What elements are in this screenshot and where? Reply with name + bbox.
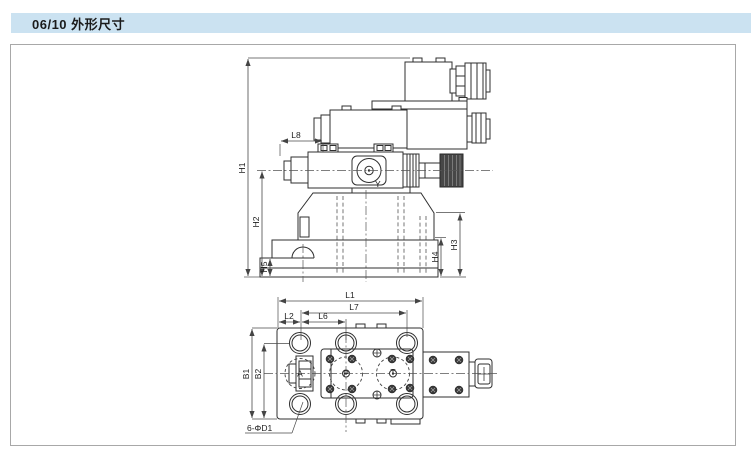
dim-label-h3: H3 xyxy=(449,239,459,250)
dim-label-b1: B1 xyxy=(241,369,251,380)
port-label-t: T xyxy=(390,367,395,377)
dim-label-h2: H2 xyxy=(251,216,261,227)
dim-label-h5: H5 xyxy=(259,261,269,272)
port-label-y: Y xyxy=(375,179,381,189)
port-label-a: A xyxy=(297,369,303,379)
dim-label-b2: B2 xyxy=(253,369,263,380)
dim-label-l6: L6 xyxy=(318,311,328,321)
dim-label-l7: L7 xyxy=(349,302,359,312)
dim-label-h1: H1 xyxy=(237,162,247,173)
top-view: L1 L7 L2 L6 B1 B2 A P T 6-ΦD1 xyxy=(241,290,497,433)
dim-label-l2: L2 xyxy=(284,311,294,321)
dim-label-l8: L8 xyxy=(291,130,301,140)
dim-label-h4: H4 xyxy=(430,251,440,262)
side-view: H1 H2 H5 L8 H4 H3 Y xyxy=(237,58,493,282)
port-label-p: P xyxy=(343,369,349,379)
hole-count-label: 6-ΦD1 xyxy=(247,423,272,433)
dimension-drawing: H1 H2 H5 L8 H4 H3 Y xyxy=(0,0,751,457)
dim-label-l1: L1 xyxy=(345,290,355,300)
